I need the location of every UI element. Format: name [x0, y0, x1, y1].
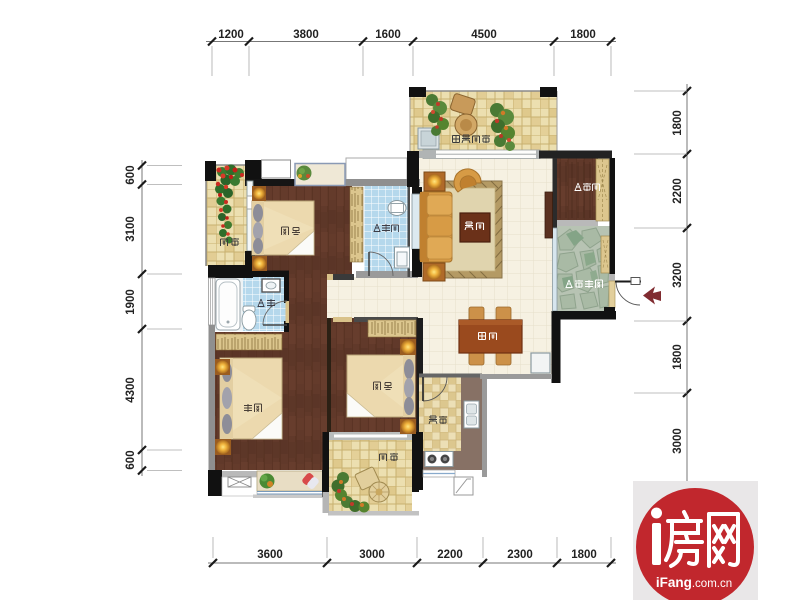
svg-text:1200: 1200 [218, 29, 244, 41]
svg-text:3000: 3000 [672, 428, 684, 454]
svg-text:600: 600 [125, 165, 137, 184]
svg-text:1800: 1800 [571, 549, 597, 561]
svg-text:1800: 1800 [570, 29, 596, 41]
svg-text:1800: 1800 [672, 110, 684, 136]
svg-text:3100: 3100 [125, 216, 137, 242]
svg-text:3000: 3000 [359, 549, 385, 561]
svg-text:600: 600 [125, 450, 137, 469]
svg-text:3600: 3600 [257, 549, 283, 561]
svg-text:iFang.com.cn: iFang.com.cn [656, 575, 732, 590]
svg-text:2200: 2200 [437, 549, 463, 561]
svg-text:4500: 4500 [471, 29, 497, 41]
svg-text:3800: 3800 [293, 29, 319, 41]
svg-text:1900: 1900 [125, 289, 137, 315]
svg-text:2200: 2200 [672, 178, 684, 204]
svg-text:1800: 1800 [672, 344, 684, 370]
svg-text:4300: 4300 [125, 377, 137, 403]
svg-text:2300: 2300 [507, 549, 533, 561]
svg-text:3200: 3200 [672, 262, 684, 288]
svg-text:1600: 1600 [375, 29, 401, 41]
